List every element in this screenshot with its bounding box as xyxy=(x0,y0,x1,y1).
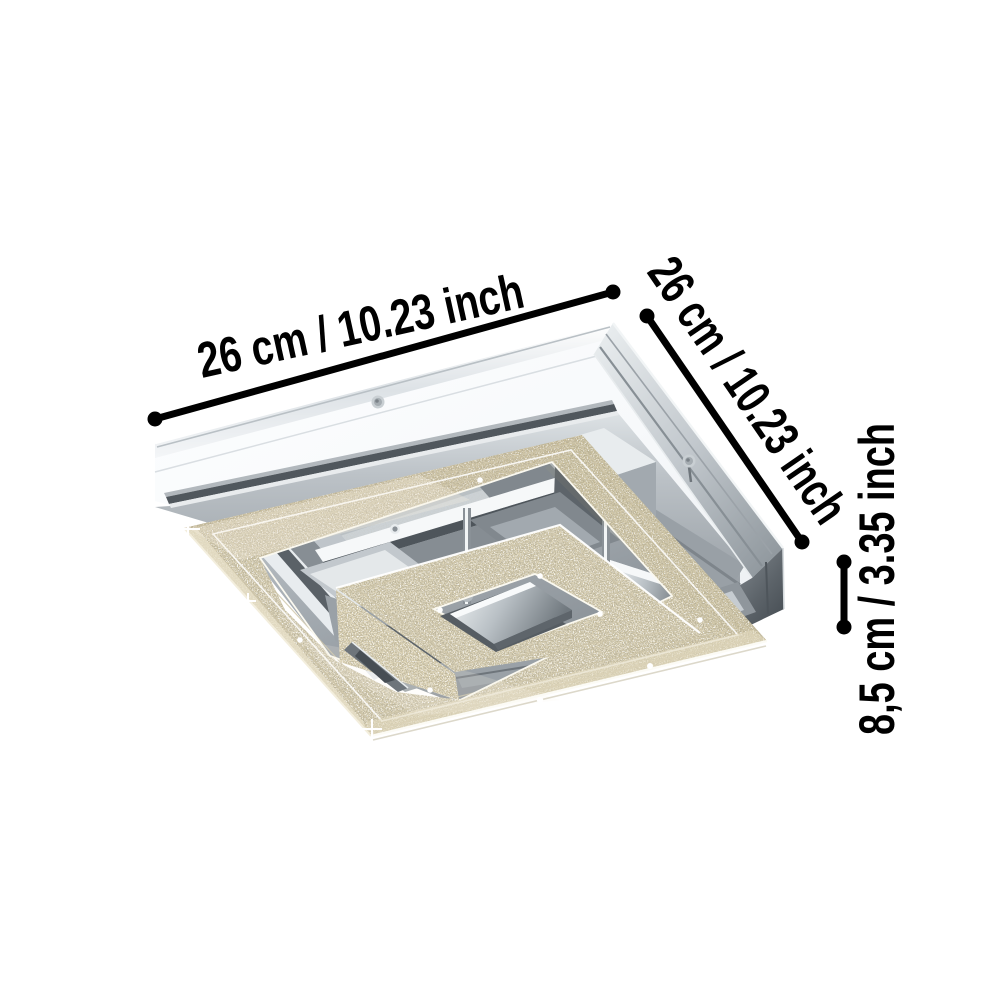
svg-text:8,5 cm / 3.35 inch: 8,5 cm / 3.35 inch xyxy=(849,423,905,735)
